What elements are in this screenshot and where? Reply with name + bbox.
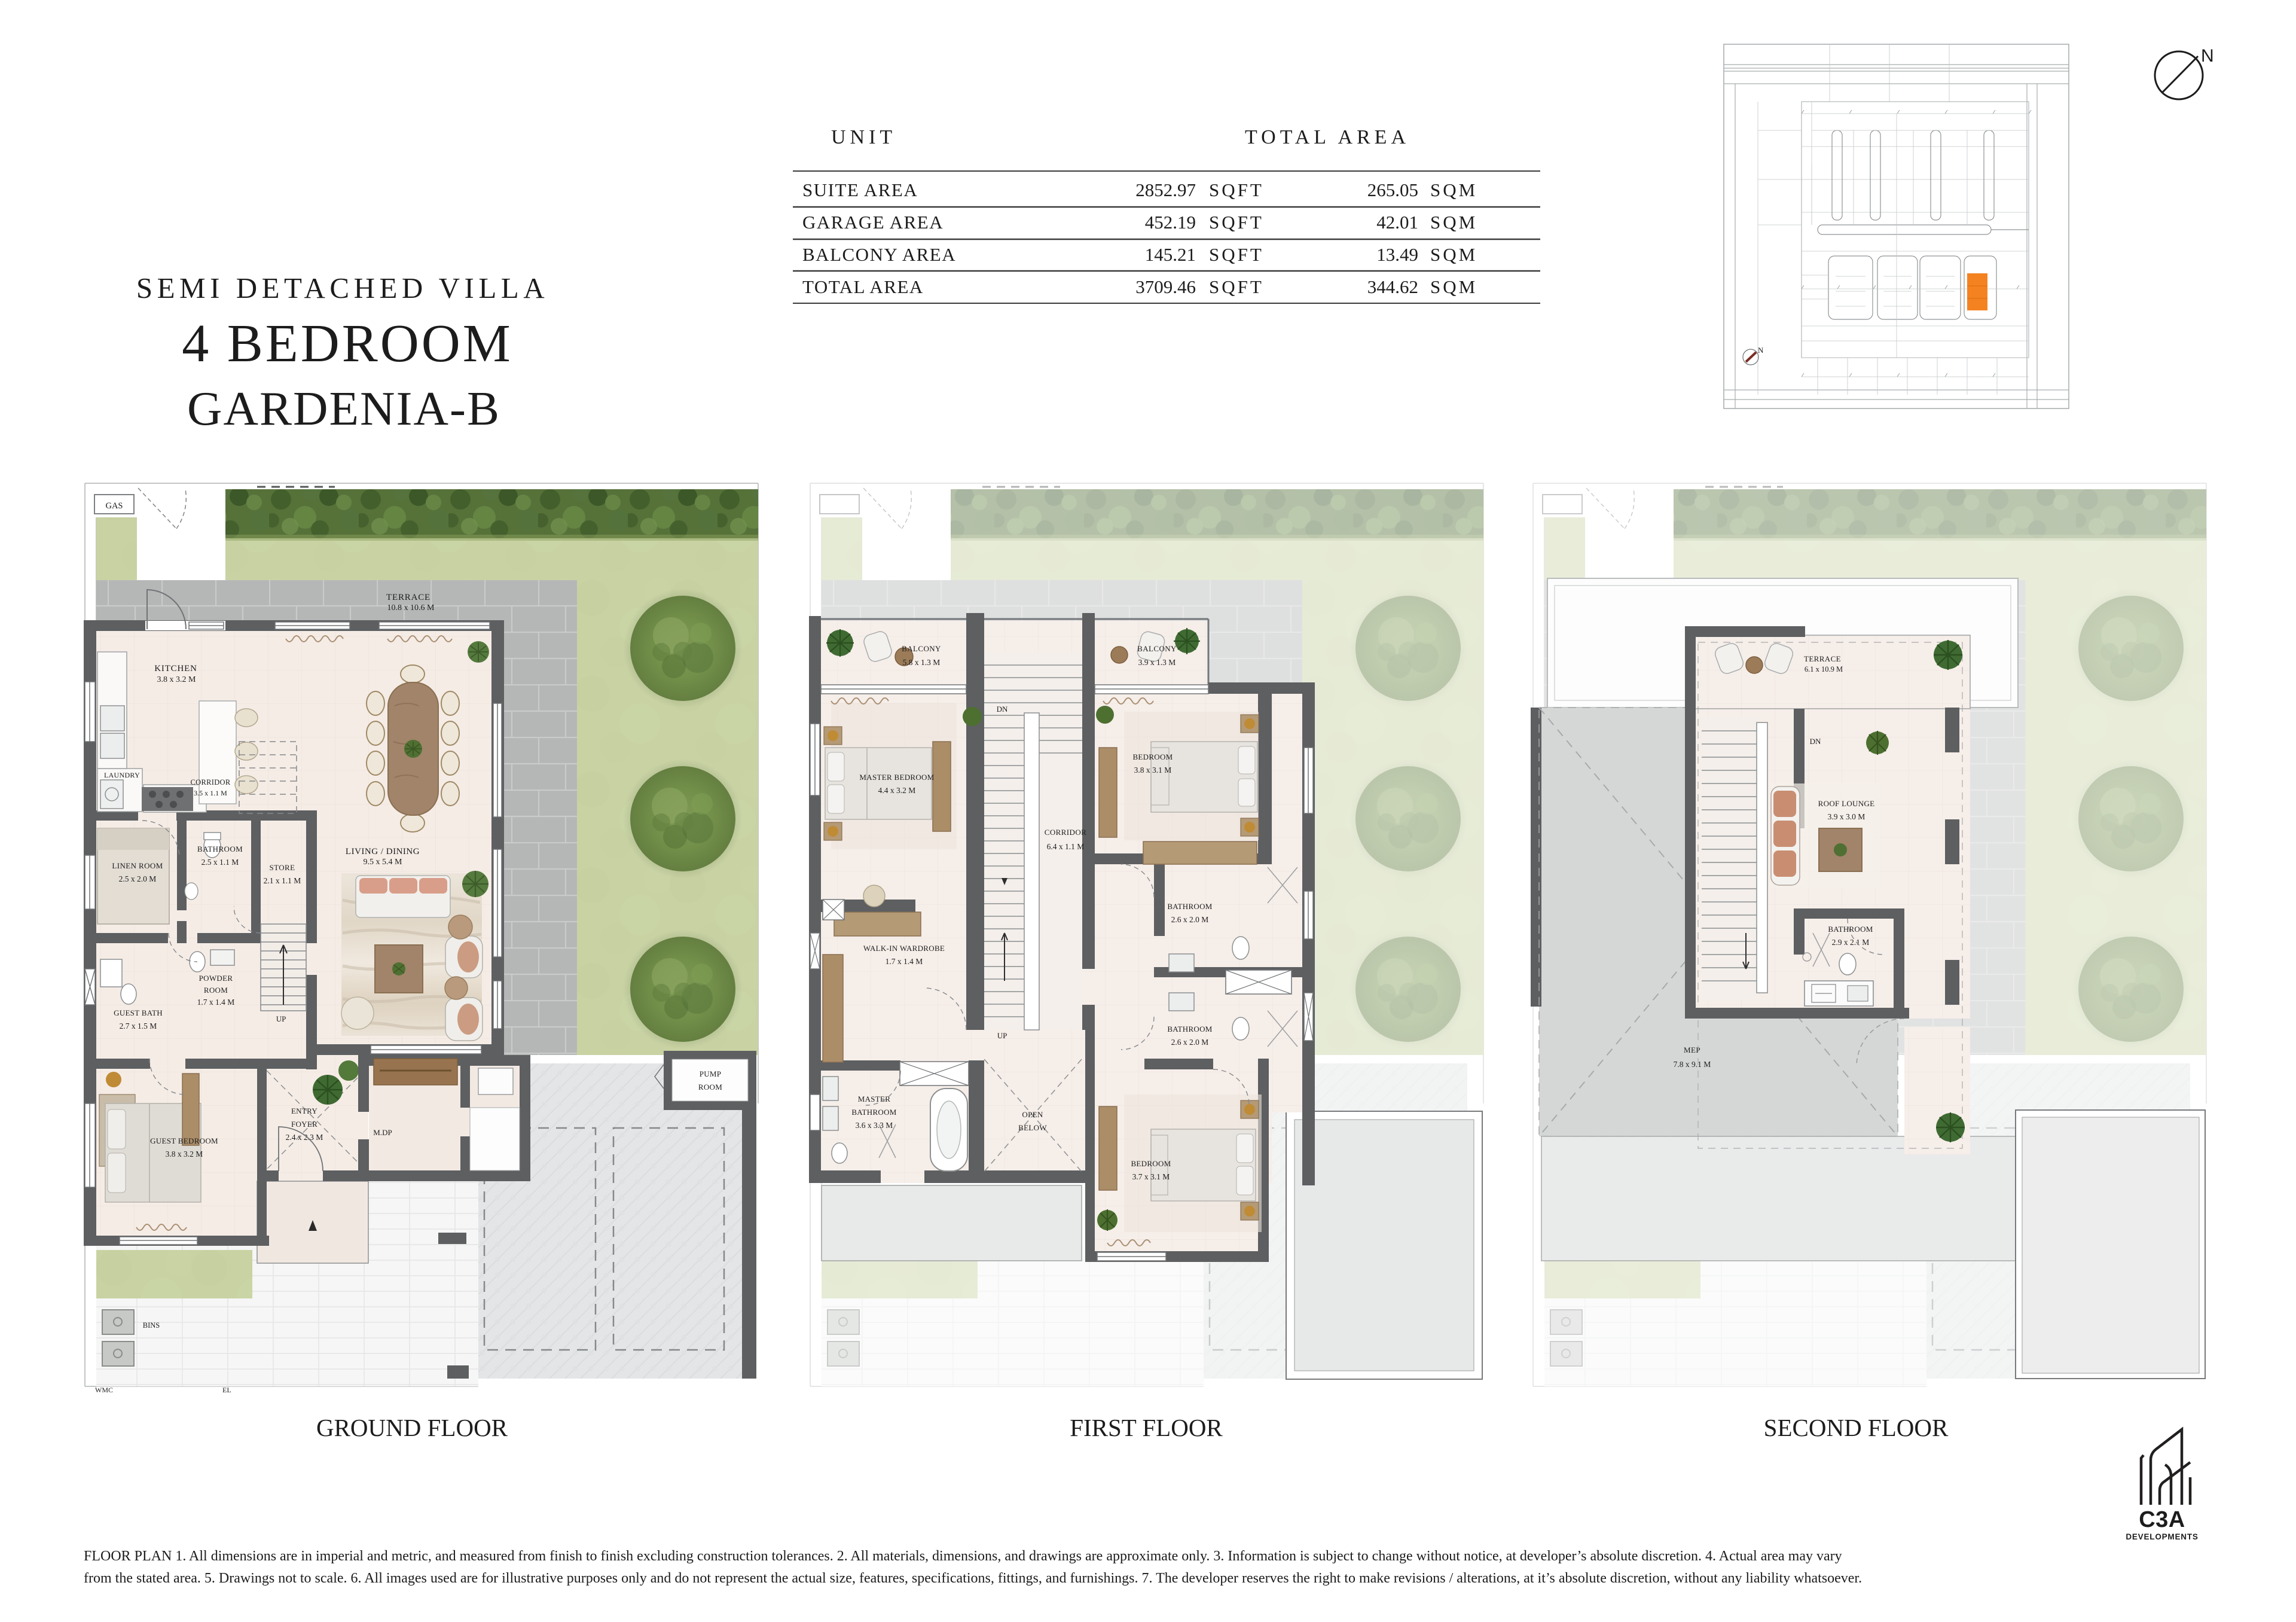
- svg-text:TOTAL AREA: TOTAL AREA: [1245, 126, 1410, 148]
- svg-text:TERRACE: TERRACE: [1804, 654, 1841, 663]
- svg-text:BALCONY AREA: BALCONY AREA: [802, 244, 956, 265]
- svg-text:SQFT: SQFT: [1209, 276, 1264, 297]
- svg-text:2.5 x 2.0 M: 2.5 x 2.0 M: [119, 874, 157, 883]
- svg-text:WALK-IN WARDROBE: WALK-IN WARDROBE: [863, 944, 945, 953]
- svg-text:GARAGE AREA: GARAGE AREA: [802, 212, 944, 233]
- svg-text:265.05: 265.05: [1367, 179, 1418, 200]
- svg-text:N: N: [1758, 346, 1764, 355]
- svg-text:FOYER: FOYER: [291, 1120, 317, 1129]
- svg-text:3.9 x 1.3 M: 3.9 x 1.3 M: [1138, 658, 1176, 667]
- svg-text:CORRIDOR: CORRIDOR: [1045, 828, 1086, 837]
- svg-text:GROUND FLOOR: GROUND FLOOR: [316, 1414, 508, 1441]
- svg-text:BATHROOM: BATHROOM: [1167, 902, 1212, 911]
- svg-text:BINS: BINS: [143, 1321, 160, 1330]
- svg-text:GAS: GAS: [105, 501, 123, 511]
- svg-text:M.DP: M.DP: [373, 1128, 392, 1137]
- svg-text:LIVING / DINING: LIVING / DINING: [346, 847, 420, 856]
- svg-text:10.8 x 10.6 M: 10.8 x 10.6 M: [387, 603, 435, 612]
- svg-text:DN: DN: [1810, 737, 1821, 746]
- svg-text:from the stated area. 5. Drawi: from the stated area. 5. Drawings not to…: [84, 1571, 1862, 1586]
- svg-text:3.8 x 3.2 M: 3.8 x 3.2 M: [157, 675, 197, 684]
- svg-text:OPEN: OPEN: [1022, 1110, 1043, 1119]
- svg-text:2.7 x 1.5 M: 2.7 x 1.5 M: [120, 1022, 157, 1030]
- svg-text:2.5 x 1.1 M: 2.5 x 1.1 M: [201, 858, 239, 867]
- svg-text:2.9 x 2.1 M: 2.9 x 2.1 M: [1832, 938, 1870, 947]
- svg-text:SQFT: SQFT: [1209, 212, 1264, 233]
- svg-text:3.9 x 3.0 M: 3.9 x 3.0 M: [1828, 812, 1865, 821]
- svg-text:3.8 x 3.1 M: 3.8 x 3.1 M: [1134, 766, 1172, 775]
- svg-text:SQFT: SQFT: [1209, 179, 1264, 200]
- svg-text:2.1 x 1.1 M: 2.1 x 1.1 M: [264, 876, 301, 885]
- svg-text:SEMI DETACHED VILLA: SEMI DETACHED VILLA: [136, 272, 549, 304]
- svg-text:SQM: SQM: [1430, 276, 1477, 297]
- svg-text:1.7 x 1.4 M: 1.7 x 1.4 M: [886, 957, 923, 966]
- svg-text:UP: UP: [276, 1014, 286, 1023]
- svg-text:SQM: SQM: [1430, 244, 1477, 265]
- svg-text:6.1 x 10.9 M: 6.1 x 10.9 M: [1805, 665, 1843, 673]
- svg-text:BALCONY: BALCONY: [902, 644, 941, 653]
- svg-text:SUITE AREA: SUITE AREA: [802, 179, 918, 200]
- svg-text:ROOF LOUNGE: ROOF LOUNGE: [1818, 799, 1875, 808]
- svg-text:2852.97: 2852.97: [1135, 179, 1196, 200]
- svg-text:3.8 x 3.2 M: 3.8 x 3.2 M: [166, 1150, 203, 1158]
- svg-text:TERRACE: TERRACE: [386, 593, 430, 602]
- svg-text:344.62: 344.62: [1367, 276, 1418, 297]
- svg-text:PUMP: PUMP: [700, 1069, 722, 1078]
- svg-text:9.5 x 5.4 M: 9.5 x 5.4 M: [364, 858, 403, 867]
- svg-text:BATHROOM: BATHROOM: [1167, 1025, 1212, 1033]
- svg-text:UNIT: UNIT: [831, 126, 896, 148]
- svg-text:3.5 x 1.1 M: 3.5 x 1.1 M: [194, 789, 227, 797]
- svg-text:3709.46: 3709.46: [1135, 276, 1196, 297]
- svg-text:2.4 x 2.3 M: 2.4 x 2.3 M: [286, 1133, 323, 1142]
- svg-text:LINEN ROOM: LINEN ROOM: [112, 861, 163, 870]
- svg-text:WMC: WMC: [95, 1386, 113, 1394]
- svg-text:CORRIDOR: CORRIDOR: [191, 778, 231, 786]
- svg-text:N: N: [2201, 46, 2214, 66]
- svg-text:GUEST BATH: GUEST BATH: [114, 1008, 163, 1017]
- svg-text:UP: UP: [997, 1031, 1007, 1040]
- svg-text:POWDER: POWDER: [199, 974, 233, 983]
- svg-text:SQM: SQM: [1430, 179, 1477, 200]
- svg-text:3.6 x 3.3 M: 3.6 x 3.3 M: [856, 1121, 893, 1130]
- svg-text:BATHROOM: BATHROOM: [197, 844, 243, 853]
- svg-text:MASTER: MASTER: [858, 1094, 891, 1103]
- svg-text:2.6 x 2.0 M: 2.6 x 2.0 M: [1171, 915, 1209, 924]
- svg-text:5.8 x 1.3 M: 5.8 x 1.3 M: [903, 658, 941, 667]
- svg-text:FIRST FLOOR: FIRST FLOOR: [1070, 1414, 1223, 1441]
- svg-text:ENTRY: ENTRY: [291, 1106, 317, 1115]
- svg-text:SECOND FLOOR: SECOND FLOOR: [1764, 1414, 1949, 1441]
- svg-text:BATHROOM: BATHROOM: [851, 1108, 896, 1117]
- svg-text:2.6 x 2.0 M: 2.6 x 2.0 M: [1171, 1038, 1209, 1047]
- svg-text:1.7 x 1.4 M: 1.7 x 1.4 M: [197, 998, 235, 1007]
- svg-text:BEDROOM: BEDROOM: [1132, 752, 1173, 761]
- svg-text:BEDROOM: BEDROOM: [1131, 1159, 1171, 1168]
- svg-text:LAUNDRY: LAUNDRY: [104, 771, 140, 779]
- svg-text:452.19: 452.19: [1145, 212, 1196, 233]
- svg-text:DN: DN: [997, 705, 1008, 714]
- svg-text:BELOW: BELOW: [1018, 1123, 1047, 1132]
- svg-text:13.49: 13.49: [1376, 244, 1418, 265]
- svg-text:GARDENIA-B: GARDENIA-B: [187, 382, 500, 435]
- svg-text:BALCONY: BALCONY: [1137, 644, 1177, 653]
- svg-text:DEVELOPMENTS: DEVELOPMENTS: [2126, 1532, 2198, 1541]
- svg-text:3.7 x 3.1 M: 3.7 x 3.1 M: [1132, 1172, 1170, 1181]
- svg-text:GUEST BEDROOM: GUEST BEDROOM: [150, 1136, 218, 1145]
- svg-text:6.4 x 1.1 M: 6.4 x 1.1 M: [1047, 842, 1085, 851]
- svg-text:ROOM: ROOM: [698, 1083, 722, 1092]
- svg-text:BATHROOM: BATHROOM: [1828, 925, 1873, 934]
- svg-text:4 BEDROOM: 4 BEDROOM: [182, 314, 513, 373]
- svg-text:SQFT: SQFT: [1209, 244, 1264, 265]
- svg-text:C3A: C3A: [2139, 1507, 2185, 1532]
- svg-text:FLOOR PLAN 1. All dimensions a: FLOOR PLAN 1. All dimensions are in impe…: [84, 1548, 1842, 1564]
- svg-text:4.4 x 3.2 M: 4.4 x 3.2 M: [878, 786, 916, 795]
- svg-text:TOTAL AREA: TOTAL AREA: [802, 276, 924, 297]
- svg-text:KITCHEN: KITCHEN: [154, 664, 197, 673]
- svg-text:SQM: SQM: [1430, 212, 1477, 233]
- svg-text:ROOM: ROOM: [204, 986, 228, 995]
- svg-text:42.01: 42.01: [1376, 212, 1418, 233]
- svg-text:145.21: 145.21: [1145, 244, 1196, 265]
- svg-text:7.8 x 9.1 M: 7.8 x 9.1 M: [1674, 1060, 1711, 1069]
- svg-text:MASTER BEDROOM: MASTER BEDROOM: [859, 773, 934, 782]
- svg-text:STORE: STORE: [270, 863, 295, 872]
- svg-text:EL: EL: [222, 1386, 231, 1394]
